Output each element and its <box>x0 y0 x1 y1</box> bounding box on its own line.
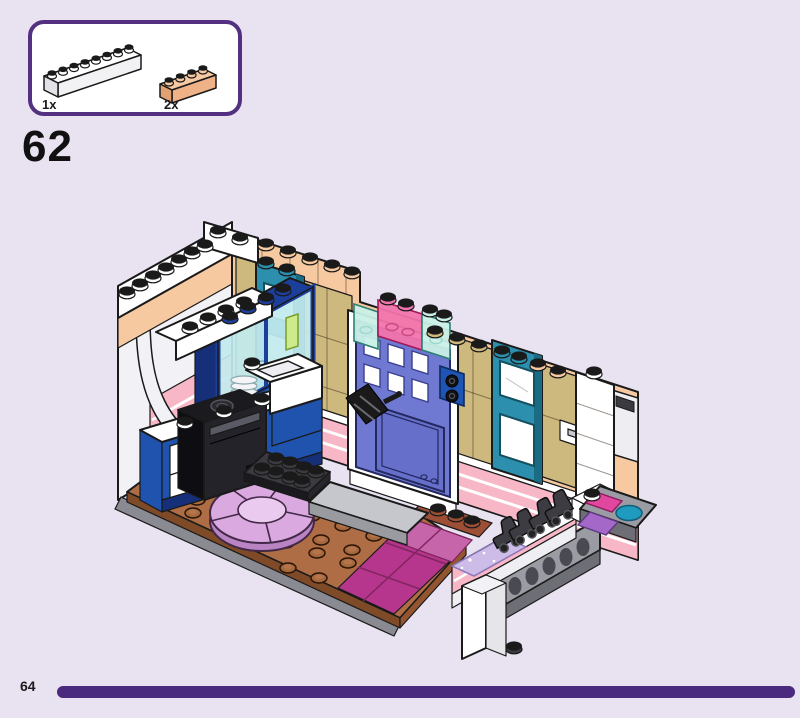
footer-bar <box>57 686 795 698</box>
corner-pillar <box>462 575 506 659</box>
blue-side-stud-brick <box>440 366 464 406</box>
plate-stack <box>231 376 257 384</box>
bottle <box>286 314 298 350</box>
lego-room-illustration <box>0 0 800 718</box>
page-footer: 64 <box>0 672 800 712</box>
teal-round-tile <box>616 506 642 521</box>
mailbox <box>612 390 638 462</box>
page-number: 64 <box>20 678 36 694</box>
